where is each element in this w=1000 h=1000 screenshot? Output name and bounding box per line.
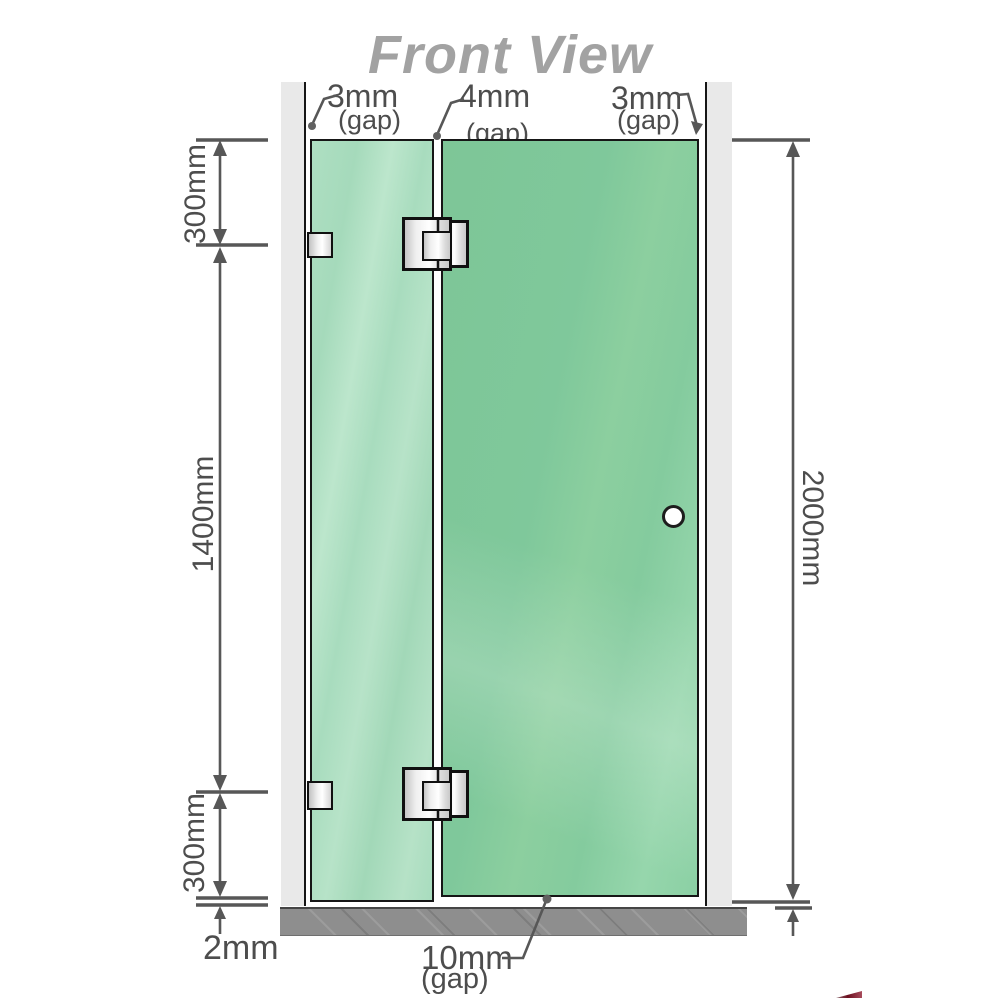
dim-label-overall-height: 2000mm <box>797 453 827 603</box>
dim-label-segment-bottom: 300mm <box>180 783 210 903</box>
watermark-logo-sliver <box>836 991 862 998</box>
right-wall <box>705 82 732 906</box>
hinge-top-clamp <box>422 231 452 261</box>
dim-label-gap-top-left-note: (gap) <box>338 107 401 134</box>
floor-slab <box>280 907 747 936</box>
door-knob <box>662 505 685 528</box>
dim-label-floor-clearance: 2mm <box>203 931 279 965</box>
diagram-title: Front View <box>330 24 690 86</box>
dim-label-gap-bottom-note: (gap) <box>421 965 489 994</box>
wall-bracket-bottom <box>307 781 333 810</box>
dim-label-gap-top-middle-value: 4mm <box>459 80 530 112</box>
dim-label-gap-top-right-note: (gap) <box>617 107 680 134</box>
dim-label-segment-top: 300mm <box>181 134 211 254</box>
shower-screen-front-view-diagram: Front View 3mm (gap) 4mm (gap) 3mm (gap)… <box>0 0 1000 1000</box>
wall-bracket-top <box>307 232 333 258</box>
glass-door-panel <box>441 139 699 897</box>
left-wall <box>281 82 306 906</box>
hinge-bottom-clamp <box>422 781 452 811</box>
dim-label-segment-middle: 1400mm <box>189 444 219 584</box>
